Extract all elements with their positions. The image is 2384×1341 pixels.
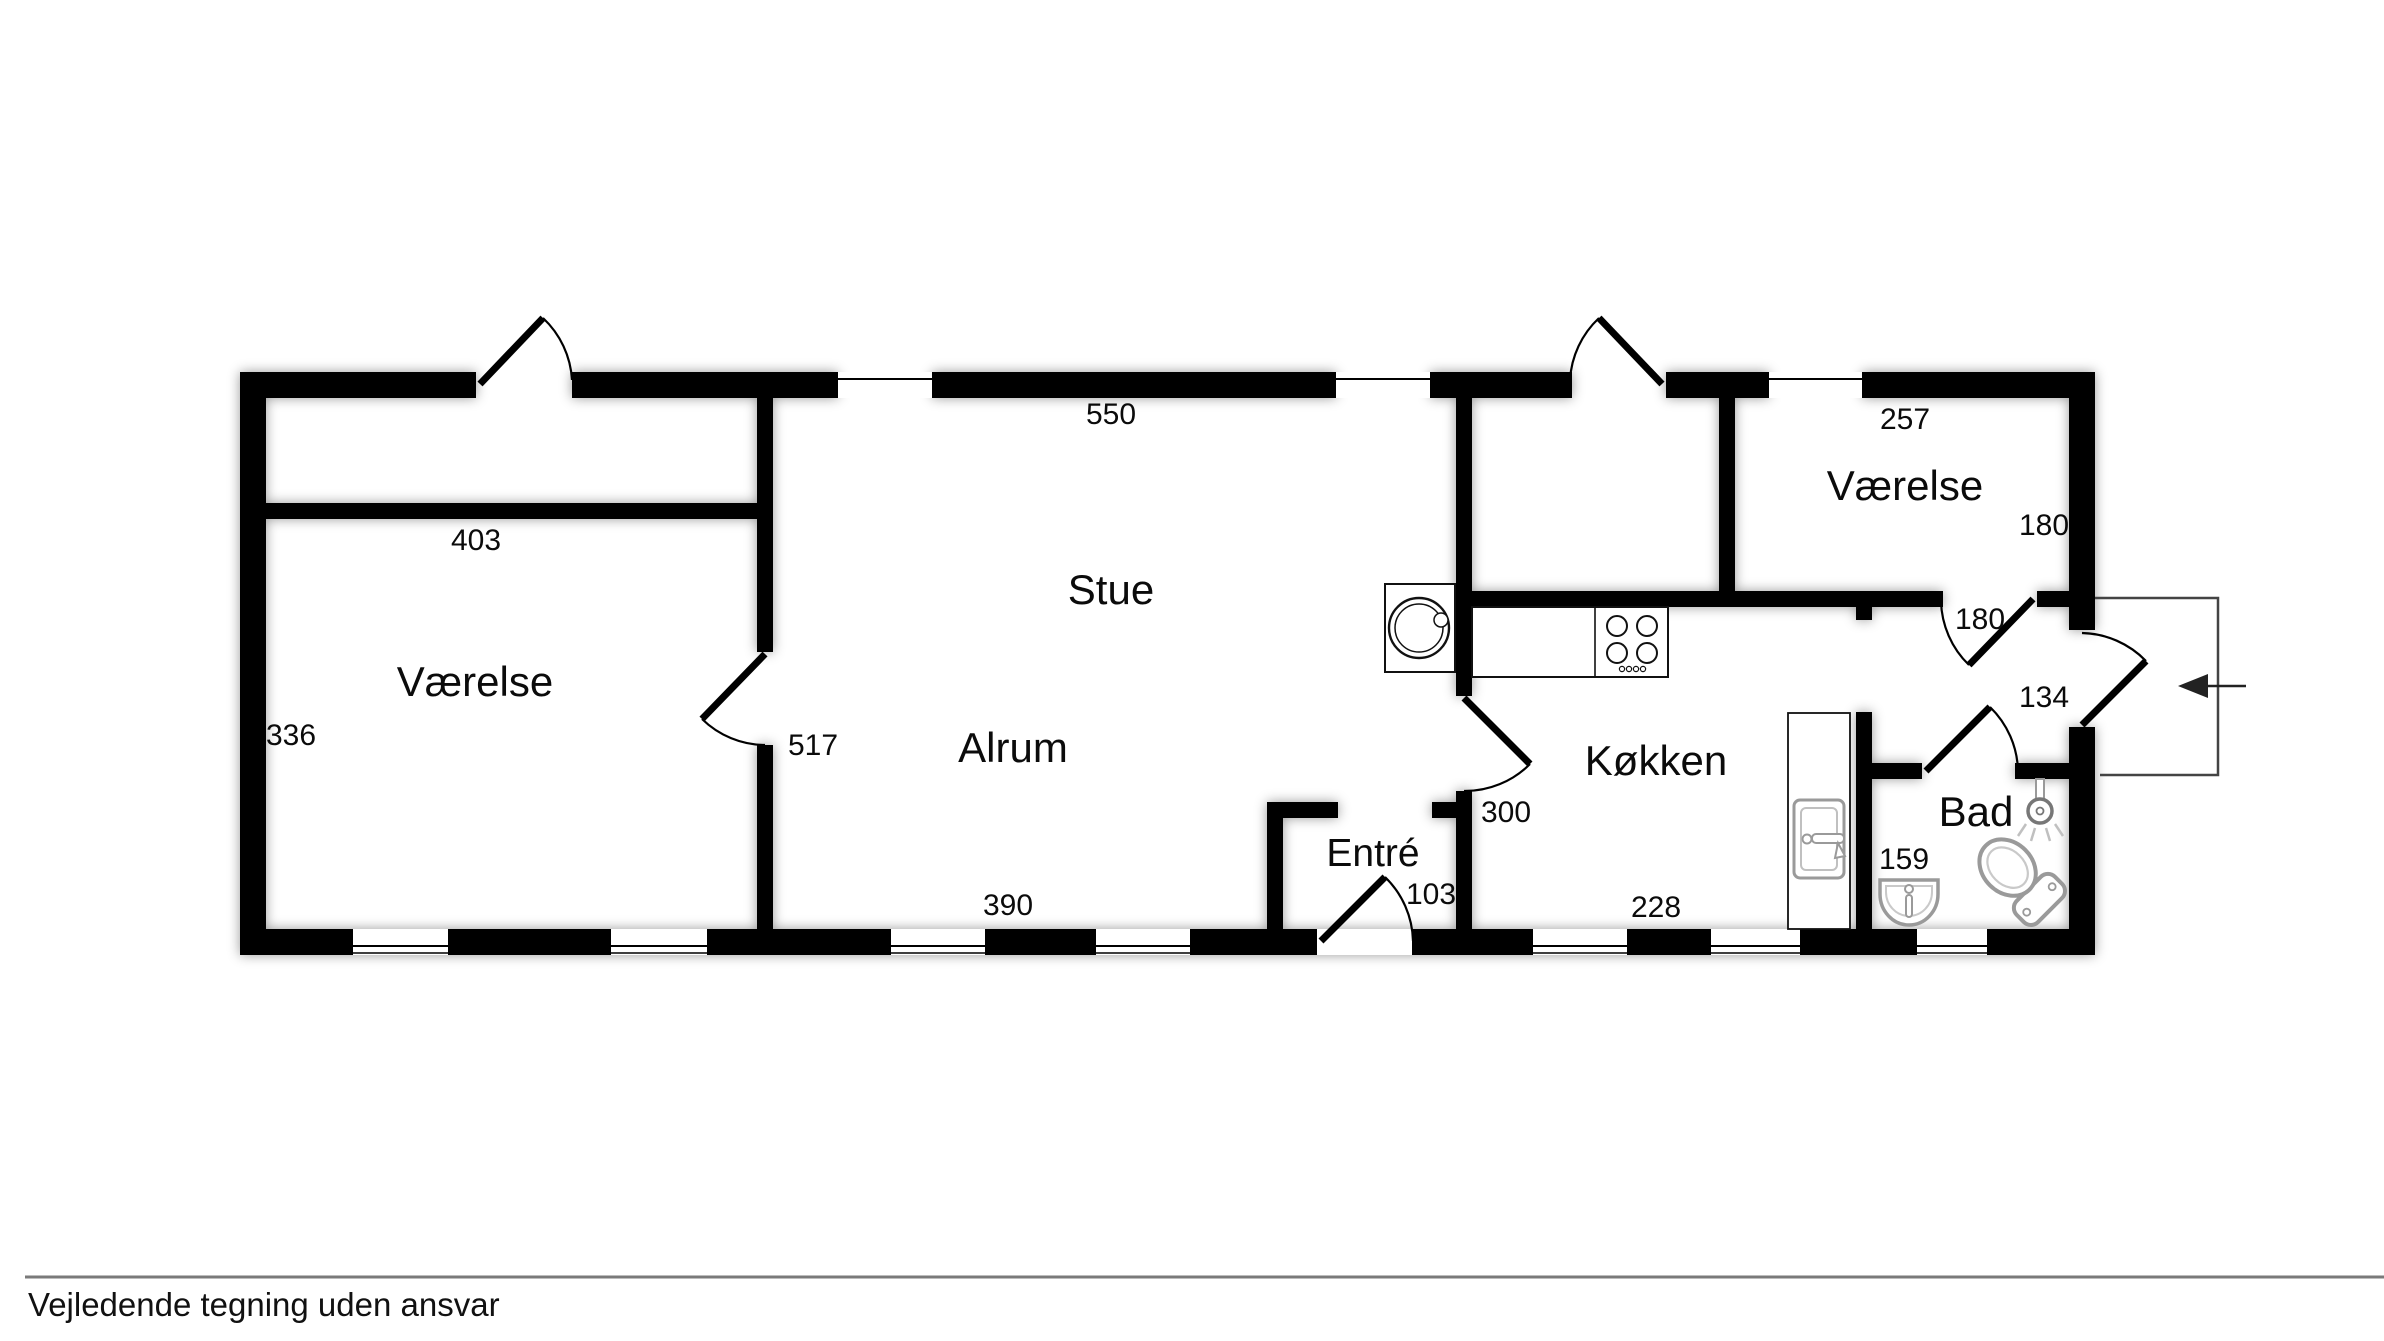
wall (2015, 763, 2069, 779)
kitchen-counter (1472, 607, 1668, 677)
shower-icon (2018, 779, 2063, 841)
dim-257: 257 (1880, 403, 1930, 436)
wall (240, 372, 476, 398)
wall (1472, 591, 1735, 607)
footer-disclaimer: Vejledende tegning uden ansvar (28, 1286, 500, 1323)
room-koekken: Køkken (1585, 737, 1727, 784)
dim-550: 550 (1086, 398, 1136, 431)
window (1096, 929, 1190, 955)
door-swing-entrance-134 (2082, 633, 2146, 725)
wall (932, 372, 1336, 398)
dim-517: 517 (788, 729, 838, 762)
window (611, 929, 707, 955)
window (838, 372, 932, 398)
toilet-icon (1967, 827, 2070, 930)
room-vaerelse-left: Værelse (397, 658, 553, 705)
wall (1456, 791, 1472, 929)
wall (240, 372, 266, 955)
dim-103: 103 (1406, 878, 1456, 911)
wall (2037, 591, 2069, 607)
window (891, 929, 985, 955)
dim-403: 403 (451, 524, 501, 557)
wall (1872, 763, 1922, 779)
window (1769, 372, 1862, 398)
wall (1735, 591, 1943, 607)
door-swing-bad (1926, 707, 2018, 771)
wall (1267, 802, 1283, 929)
dim-228: 228 (1631, 891, 1681, 924)
wall (2069, 727, 2095, 955)
dim-336: 336 (266, 719, 316, 752)
dim-300: 300 (1481, 796, 1531, 829)
room-bad: Bad (1939, 788, 2014, 835)
wall (1856, 712, 1872, 929)
wall (1719, 398, 1735, 607)
wall (2069, 372, 2095, 630)
wall (757, 398, 773, 652)
window (353, 929, 448, 955)
window (1711, 929, 1800, 955)
windows (353, 372, 1987, 955)
dim-390: 390 (983, 889, 1033, 922)
wall (572, 372, 838, 398)
wall (266, 503, 757, 519)
floor-plan-page: 550 403 336 Værelse 517 Stue Alrum 390 E… (0, 0, 2384, 1341)
wall (1856, 607, 1872, 620)
door-swing-top-left (480, 318, 572, 384)
wall (1862, 372, 2095, 398)
wall (1666, 372, 1769, 398)
entrance-arrow-icon (2178, 674, 2246, 698)
wall (1456, 398, 1472, 696)
bathroom-sink-icon (1880, 880, 1938, 925)
room-alrum: Alrum (958, 724, 1068, 771)
wall (1267, 802, 1338, 818)
door-swing-top-utility (1570, 318, 1662, 384)
wall (757, 745, 773, 929)
dim-180-door: 180 (1955, 603, 2005, 636)
window (1533, 929, 1627, 955)
window (1917, 929, 1987, 955)
wall (1430, 372, 1572, 398)
room-vaerelse-right: Værelse (1827, 462, 1983, 509)
room-entre: Entré (1326, 832, 1419, 875)
dim-180-room: 180 (2019, 509, 2069, 542)
dim-159: 159 (1879, 843, 1929, 876)
wall (1432, 802, 1458, 818)
dim-134: 134 (2019, 681, 2069, 714)
sink-cabinet-icon (1788, 713, 1850, 929)
footer: Vejledende tegning uden ansvar (25, 1277, 2384, 1323)
door-swing-vaerelse-left (702, 654, 765, 745)
floor-plan-drawing: 550 403 336 Værelse 517 Stue Alrum 390 E… (0, 0, 2384, 1341)
washing-machine-icon (1385, 584, 1455, 672)
window (1336, 372, 1430, 398)
door-swing-koekken-300 (1464, 698, 1530, 791)
room-stue: Stue (1068, 566, 1154, 613)
